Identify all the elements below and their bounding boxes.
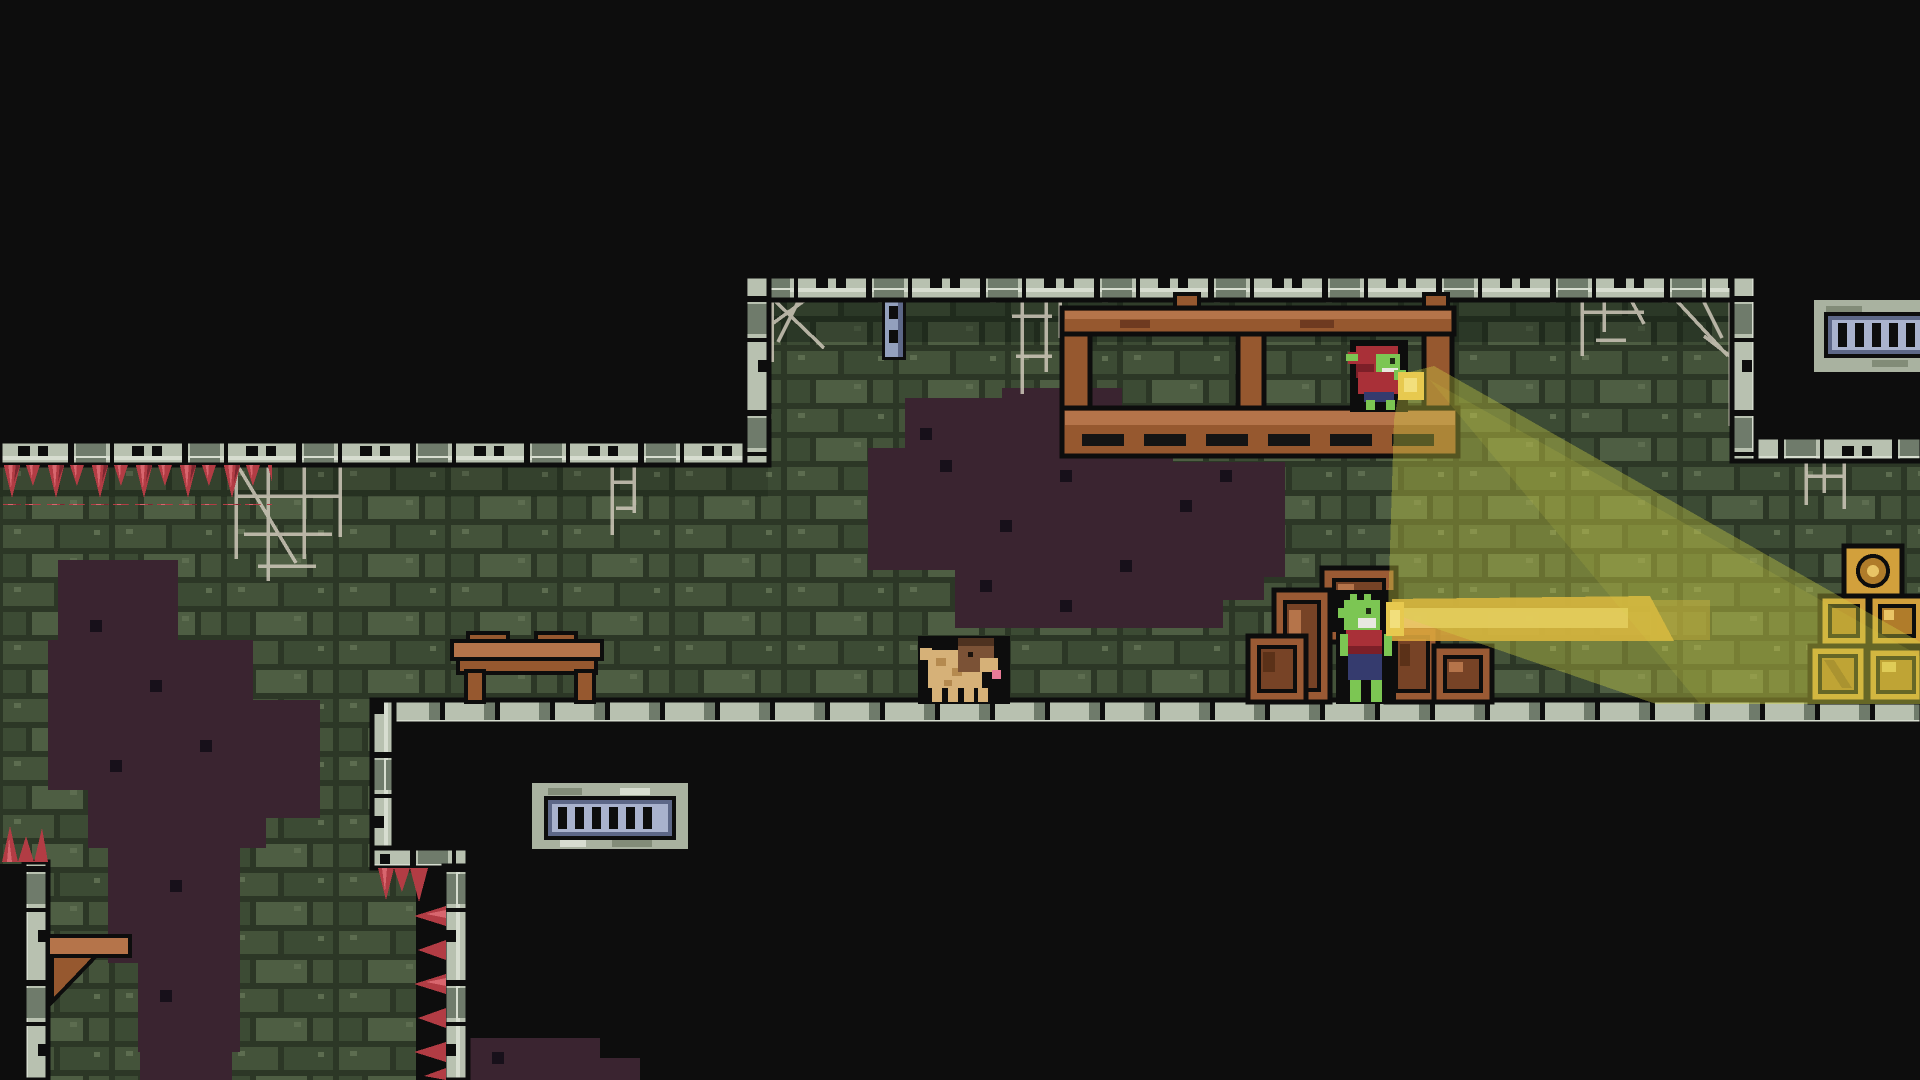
ceiling-spikes bbox=[0, 465, 272, 505]
torch-flame-upper bbox=[1398, 372, 1424, 400]
vent-lower bbox=[532, 783, 688, 849]
pit-wall-upper bbox=[372, 700, 394, 852]
crate bbox=[1434, 646, 1492, 702]
gallery-wall-right bbox=[1732, 276, 1756, 461]
ceiling-right bbox=[1732, 437, 1920, 461]
hanging-chain bbox=[882, 294, 906, 360]
crate-gold bbox=[1844, 546, 1902, 596]
game-viewport[interactable] bbox=[0, 0, 1920, 1080]
gallery-ceiling bbox=[745, 276, 1755, 300]
pug-dog bbox=[918, 636, 1010, 704]
pit-wall-left bbox=[24, 862, 48, 1080]
gallery-wall-left bbox=[745, 276, 769, 465]
crate bbox=[1248, 636, 1306, 702]
pit-wall-lower bbox=[444, 866, 468, 1080]
ceiling-left bbox=[0, 441, 768, 465]
torch-flame-lower bbox=[1386, 602, 1404, 636]
game-scene-canvas bbox=[0, 0, 1920, 1080]
vent-upper-right bbox=[1814, 300, 1920, 372]
